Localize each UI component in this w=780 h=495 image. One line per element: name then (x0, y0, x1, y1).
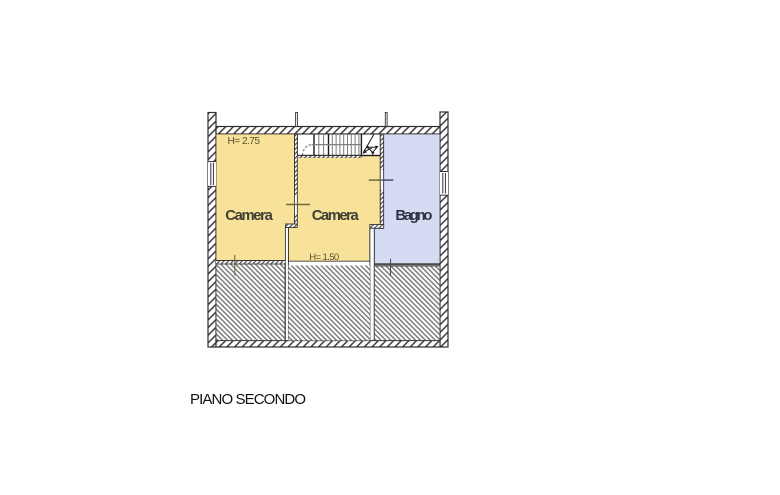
svg-text:H= 2.75: H= 2.75 (228, 136, 261, 147)
svg-text:Bagno: Bagno (395, 208, 432, 224)
svg-text:H= 1.50: H= 1.50 (309, 252, 339, 263)
svg-text:Camera: Camera (225, 208, 273, 224)
svg-text:Camera: Camera (312, 208, 360, 224)
svg-text:PIANO SECONDO: PIANO SECONDO (190, 391, 306, 408)
